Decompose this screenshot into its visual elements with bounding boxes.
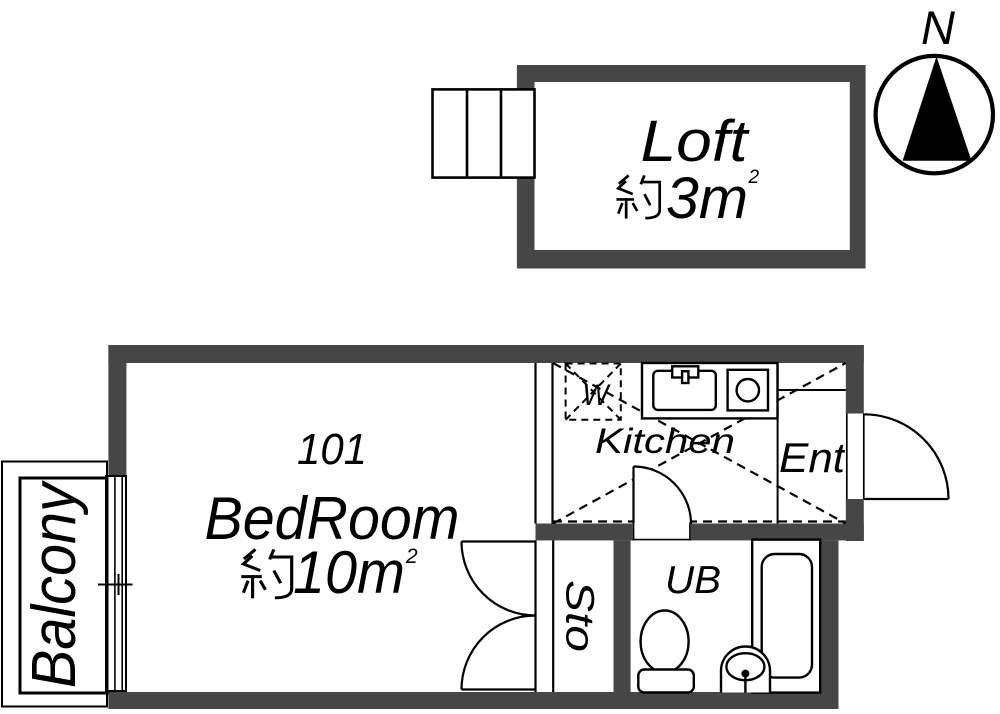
svg-text:Ent: Ent — [779, 434, 847, 481]
svg-text:Balcony: Balcony — [20, 479, 89, 688]
svg-text:2: 2 — [748, 167, 760, 188]
svg-text:2: 2 — [405, 545, 418, 568]
svg-text:10m: 10m — [293, 539, 405, 606]
svg-text:N: N — [921, 1, 955, 54]
svg-text:Kitchen: Kitchen — [595, 422, 735, 461]
svg-text:Sto: Sto — [558, 580, 602, 652]
svg-text:UB: UB — [665, 559, 721, 602]
svg-text:W: W — [583, 379, 611, 412]
svg-text:3m: 3m — [666, 166, 748, 231]
svg-text:101: 101 — [297, 425, 367, 474]
svg-text:Loft: Loft — [641, 109, 751, 174]
